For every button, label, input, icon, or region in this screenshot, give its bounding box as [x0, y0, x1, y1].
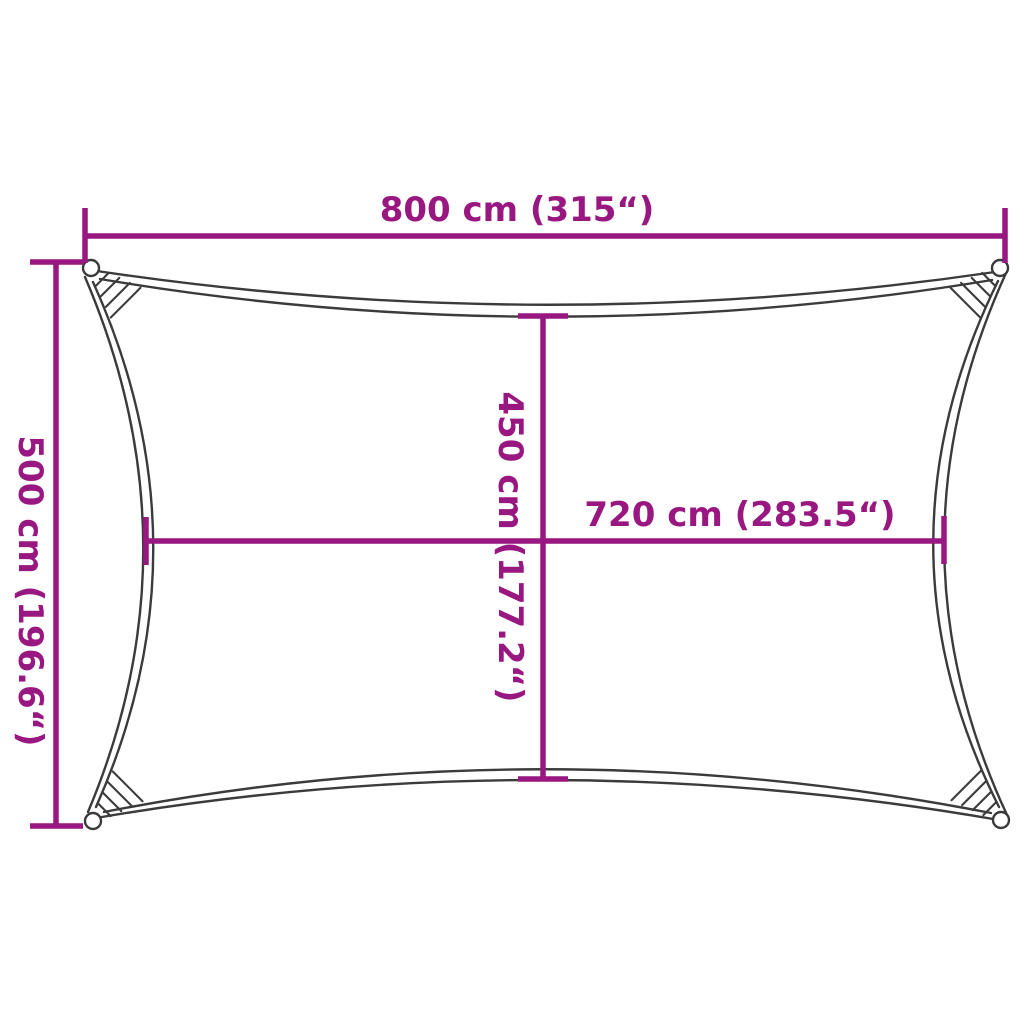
corner-grommet-top-left: [83, 260, 141, 318]
dimension-diagram: 800 cm (315“) 500 cm (196.6“) 450 cm (17…: [0, 0, 1024, 1024]
inner-width-label: 720 cm (283.5“): [584, 495, 895, 535]
inner-height-label: 450 cm (177.2“): [490, 391, 530, 702]
left-height-label: 500 cm (196.6“): [10, 435, 50, 746]
top-width-label: 800 cm (315“): [380, 190, 655, 230]
sail-outline: [85, 271, 1007, 820]
